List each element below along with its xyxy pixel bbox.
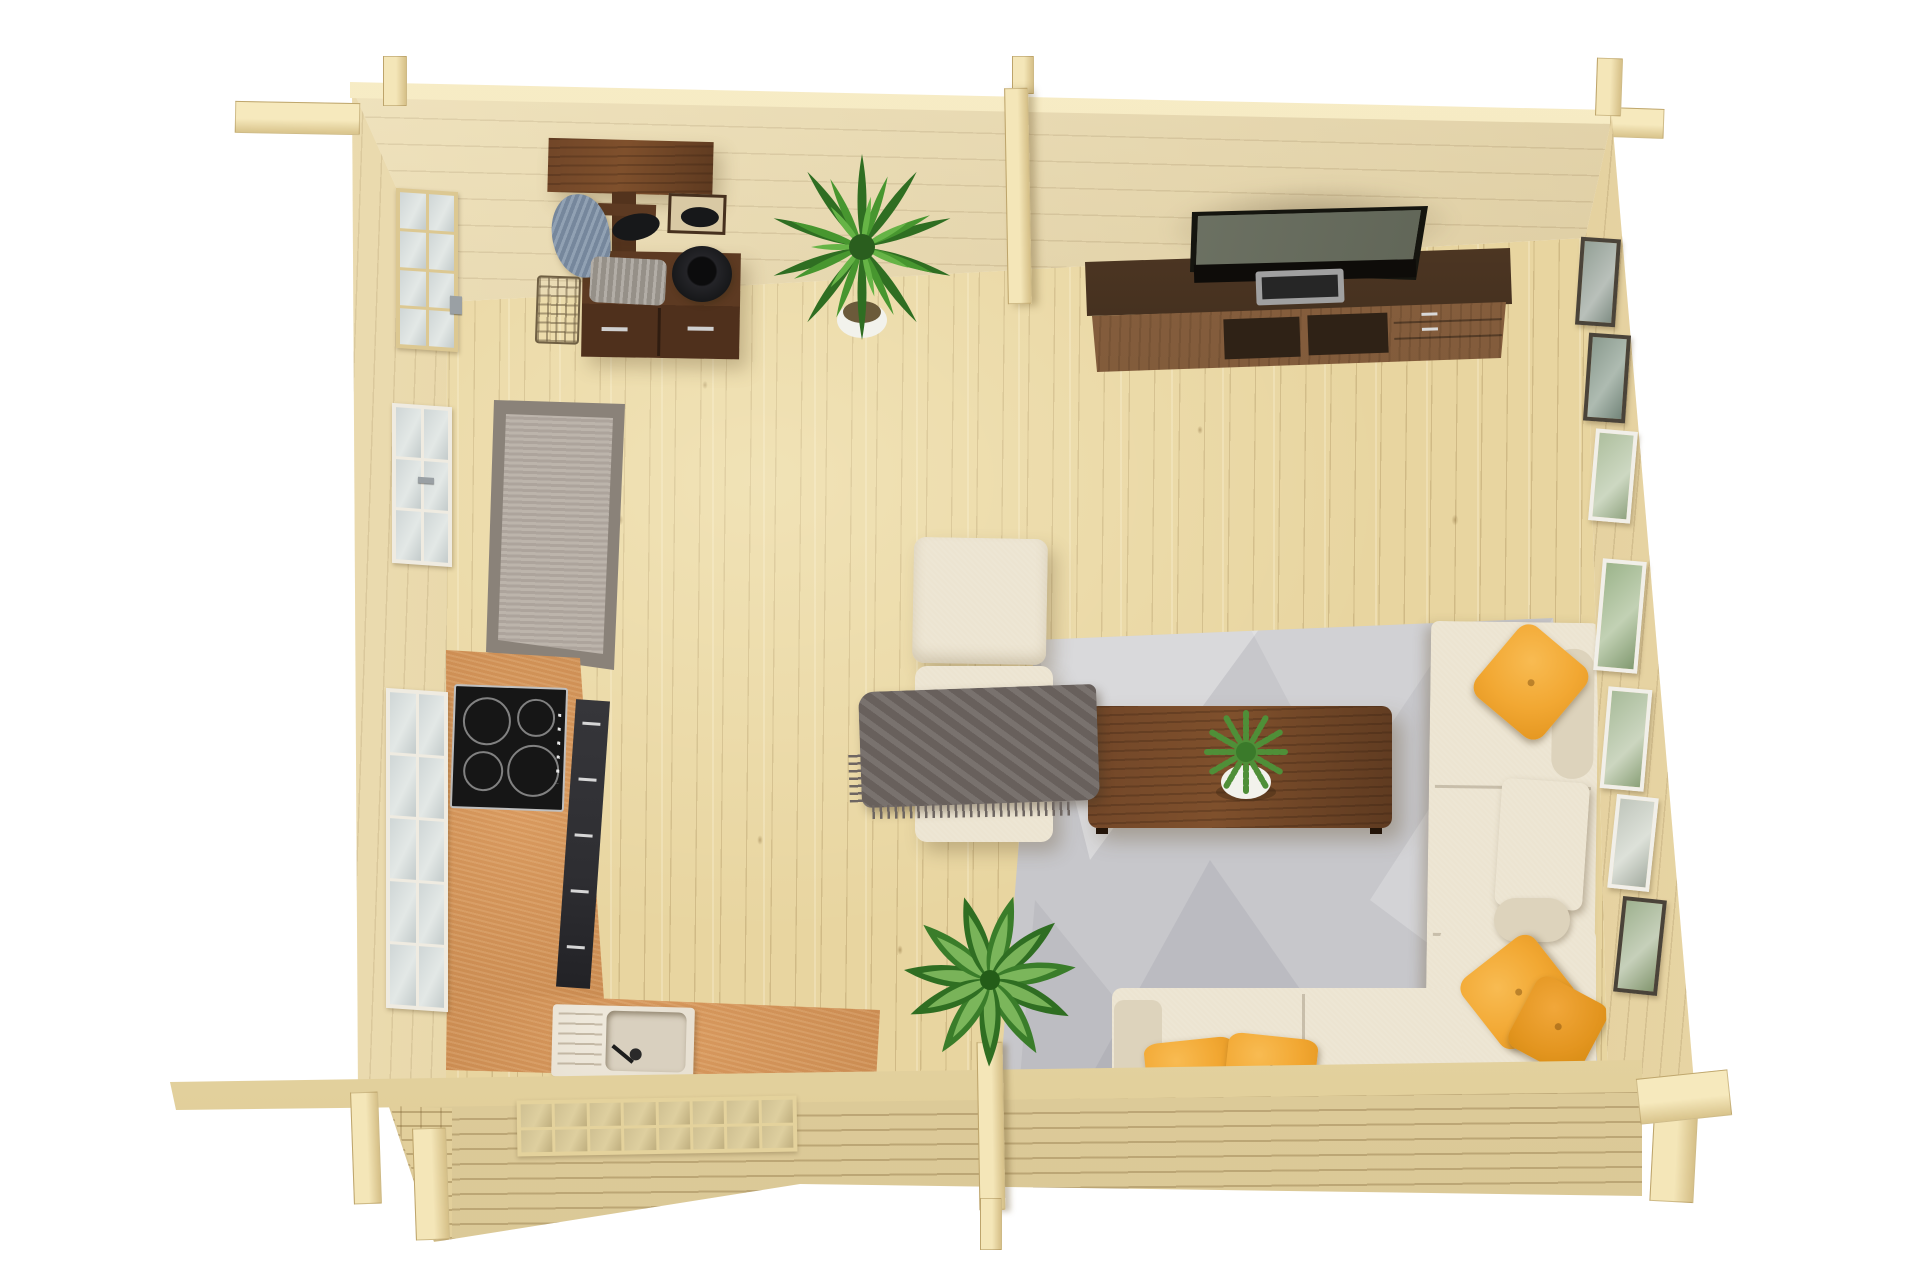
window-pane <box>396 511 421 561</box>
window-pane <box>419 694 445 756</box>
table-foot <box>1370 828 1382 834</box>
drawer-seam <box>657 308 661 356</box>
drawer-handle <box>1421 312 1437 316</box>
door-handle-icon <box>450 296 462 315</box>
window-pane <box>693 1126 725 1149</box>
wire-basket <box>535 275 581 344</box>
hall-tree-mirror <box>667 193 726 235</box>
drawer-handle <box>1422 327 1438 331</box>
burner <box>462 750 503 791</box>
corner-log-bottom-left <box>412 1127 450 1240</box>
burner <box>516 698 555 737</box>
window-pane <box>419 820 445 882</box>
window-pane <box>521 1104 553 1127</box>
window-pane <box>396 459 421 509</box>
door-pane <box>429 194 455 232</box>
burner <box>506 744 560 798</box>
soundbar <box>1255 268 1344 305</box>
corner-log-bottom-left <box>350 1092 382 1205</box>
sink-drainboard <box>557 1012 602 1067</box>
window-pane <box>396 407 421 457</box>
cabinet-handle <box>571 889 589 893</box>
dieffenbachia-plant <box>870 870 1110 1100</box>
partition-beam-top <box>1004 88 1032 304</box>
throw-fringe <box>848 750 863 802</box>
entry-door-glazed <box>396 188 458 352</box>
window-pane <box>424 461 449 511</box>
drawer-handle <box>602 327 628 331</box>
hall-tree-top-panel <box>547 138 713 196</box>
window-pane <box>390 818 416 880</box>
window-pane <box>761 1100 793 1123</box>
cabinet-handle <box>578 778 596 782</box>
burner <box>462 696 512 746</box>
window-pane <box>624 1128 656 1151</box>
window-pane <box>624 1102 656 1125</box>
window-pane <box>762 1125 794 1148</box>
cabinet-handle <box>582 722 600 726</box>
window-pane <box>419 757 445 819</box>
window-pane <box>692 1101 724 1124</box>
gray-throw-blanket <box>858 684 1100 808</box>
sink-basin <box>605 1011 687 1073</box>
sofa-loose-cushion <box>1494 778 1590 912</box>
door-pane <box>400 192 426 230</box>
window-pane <box>659 1127 691 1150</box>
console-drawers <box>1393 304 1503 356</box>
window-pane <box>555 1103 587 1126</box>
partition-beam-foot <box>980 1198 1002 1250</box>
window-pane <box>424 512 449 562</box>
window-pane <box>390 755 416 817</box>
door-pane <box>429 233 455 271</box>
window-pane <box>424 409 449 459</box>
console-open-shelf <box>1307 313 1388 356</box>
window-pane <box>590 1128 622 1151</box>
folded-blanket <box>589 256 667 306</box>
table-foot <box>1096 828 1108 834</box>
picture-frame <box>1575 237 1621 328</box>
drawer-handle <box>688 326 714 330</box>
fern-centerpiece <box>1176 700 1316 820</box>
window-handle-icon <box>418 477 434 484</box>
window-pane <box>727 1100 759 1123</box>
induction-hob <box>450 684 568 812</box>
window-pane <box>555 1129 587 1152</box>
hob-controls <box>556 714 561 784</box>
door-pane <box>400 270 426 308</box>
sofa-armrest-roll <box>1494 898 1570 942</box>
picture-frame <box>1583 333 1631 424</box>
lounge-chair-back <box>912 537 1048 665</box>
window-pane <box>521 1129 553 1152</box>
picture-frame <box>1588 428 1638 523</box>
soundbar-slot <box>1262 275 1339 300</box>
window-left-lower <box>386 688 448 1012</box>
picture-frame <box>1600 686 1653 791</box>
kitchen-sink <box>551 1004 695 1080</box>
window-pane <box>589 1103 621 1126</box>
log-beam-top-left <box>235 101 361 135</box>
window-left-upper <box>392 403 452 567</box>
drawer-seam <box>1394 334 1502 340</box>
log-tab-top-left <box>383 56 407 106</box>
window-pane <box>390 692 416 754</box>
cabin-top-view-scene <box>0 0 1920 1281</box>
corner-log-bottom-right <box>1636 1069 1732 1124</box>
window-pane <box>727 1126 759 1149</box>
palm-plant <box>752 142 972 362</box>
door-pane <box>400 308 426 346</box>
black-fedora-hat <box>672 246 732 302</box>
window-pane <box>419 883 445 945</box>
window-pane <box>390 944 416 1006</box>
cabinet-handle <box>575 833 593 837</box>
hat-in-mirror <box>681 206 720 227</box>
window-pane <box>658 1101 690 1124</box>
door-pane <box>400 231 426 269</box>
cabinet-handle <box>567 945 585 949</box>
door-pane <box>429 310 455 348</box>
front-wall-window <box>517 1096 798 1157</box>
window-pane <box>419 946 445 1008</box>
log-tab-top-right <box>1595 58 1623 117</box>
console-open-shelf <box>1223 317 1300 360</box>
drawer-seam <box>1394 318 1502 324</box>
window-pane <box>390 881 416 943</box>
